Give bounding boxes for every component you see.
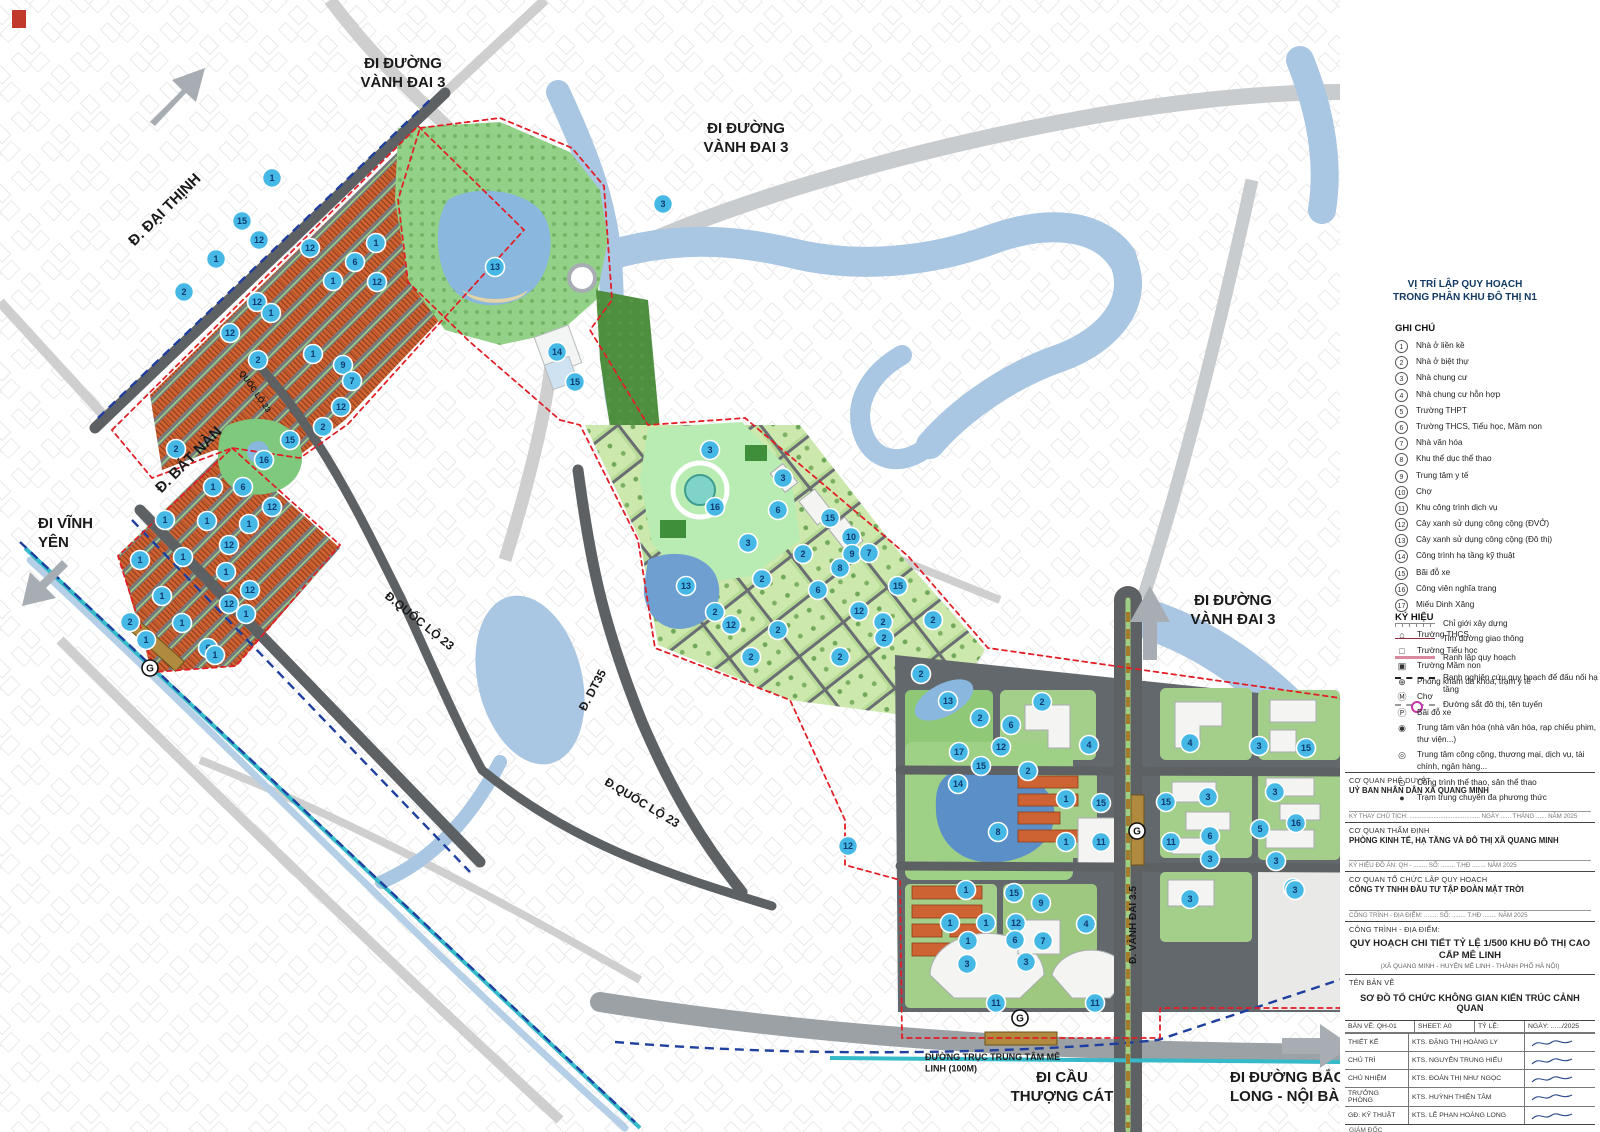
svg-text:12: 12 <box>996 742 1006 752</box>
staff-role: CHỦ TRÌ <box>1345 1051 1409 1069</box>
land-use-marker: 6 <box>769 501 788 520</box>
land-use-marker: 12 <box>992 738 1011 757</box>
metro-station-marker: G <box>1129 823 1145 839</box>
land-use-marker: 2 <box>249 351 268 370</box>
market-icon: Ⓜ <box>1395 691 1409 703</box>
legend-item-label: Cây xanh sử dụng công cộng (ĐVỞ) <box>1416 518 1549 530</box>
svg-text:1: 1 <box>269 173 274 183</box>
svg-text:2: 2 <box>800 549 805 559</box>
land-use-marker: 3 <box>774 469 793 488</box>
project-subtitle: (XÃ QUANG MINH - HUYỆN MÊ LINH - THÀNH P… <box>1349 963 1591 970</box>
land-use-marker: 1 <box>137 631 156 650</box>
inset-caption: VỊ TRÍ LẬP QUY HOẠCH TRONG PHÂN KHU ĐÔ T… <box>1350 278 1580 304</box>
svg-text:6: 6 <box>1008 720 1013 730</box>
land-use-marker: 16 <box>255 451 274 470</box>
land-use-marker: 12 <box>301 239 320 258</box>
svg-text:12: 12 <box>336 402 346 412</box>
legend-item-label: Nhà chung cư hỗn hợp <box>1416 389 1500 401</box>
svg-text:3: 3 <box>1205 792 1210 802</box>
svg-text:16: 16 <box>1291 818 1301 828</box>
legend-item-number: 1 <box>1395 340 1408 353</box>
land-use-marker: 11 <box>1162 833 1181 852</box>
land-use-marker: 1 <box>263 169 282 188</box>
svg-text:10: 10 <box>846 532 856 542</box>
land-use-marker: 1 <box>131 551 150 570</box>
legend-item-label: Khu công trình dịch vụ <box>1416 502 1497 514</box>
culture-center-icon: ◉ <box>1395 722 1409 734</box>
svg-text:1: 1 <box>310 349 315 359</box>
legend-item: 8 Khu thể dục thể thao <box>1395 453 1600 466</box>
svg-text:6: 6 <box>352 257 357 267</box>
land-use-marker: 1 <box>156 511 175 530</box>
legend-item-number: 17 <box>1395 599 1408 612</box>
approval-section: CƠ QUAN PHÊ DUYỆT UỶ BAN NHÂN DÂN XÃ QUA… <box>1345 773 1595 823</box>
svg-text:1: 1 <box>223 567 228 577</box>
land-use-marker: 11 <box>987 994 1006 1013</box>
staff-signature <box>1525 1051 1595 1069</box>
clinic-icon: ⊕ <box>1395 676 1409 688</box>
corner-logo <box>12 10 26 28</box>
land-use-marker: 15 <box>566 373 585 392</box>
legend-title: GHI CHÚ <box>1395 323 1600 334</box>
legend-item: 14 Công trình hạ tầng kỹ thuật <box>1395 550 1600 563</box>
approval-value: UỶ BAN NHÂN DÂN XÃ QUANG MINH <box>1349 786 1591 797</box>
legend-item: 6 Trường THCS, Tiểu học, Mầm non <box>1395 421 1600 434</box>
legend-item-label: Công viên nghĩa trang <box>1416 583 1497 595</box>
land-use-marker: 3 <box>739 534 758 553</box>
svg-text:1: 1 <box>947 918 952 928</box>
svg-text:15: 15 <box>237 216 247 226</box>
svg-text:1: 1 <box>180 552 185 562</box>
school-mamnon-icon: ▣ <box>1395 660 1409 672</box>
project-label: CÔNG TRÌNH - ĐỊA ĐIỂM: <box>1349 925 1591 934</box>
svg-text:17: 17 <box>954 747 964 757</box>
svg-text:12: 12 <box>372 277 382 287</box>
land-use-marker: 3 <box>1250 737 1269 756</box>
land-use-marker: 6 <box>234 478 253 497</box>
svg-text:1: 1 <box>210 482 215 492</box>
svg-text:1: 1 <box>330 276 335 286</box>
svg-text:11: 11 <box>1090 998 1100 1008</box>
inset-caption-line1: VỊ TRÍ LẬP QUY HOẠCH <box>1350 278 1580 291</box>
land-use-marker: 12 <box>332 398 351 417</box>
svg-text:13: 13 <box>943 696 953 706</box>
land-use-marker: 2 <box>742 648 761 667</box>
land-use-marker: 15 <box>1005 884 1024 903</box>
land-use-marker: 14 <box>548 343 567 362</box>
legend-item: 3 Nhà chung cư <box>1395 372 1600 385</box>
sheet-size: SHEET: A0 <box>1415 1021 1475 1032</box>
land-use-marker: 1 <box>977 914 996 933</box>
project-title: QUY HOẠCH CHI TIẾT TỶ LỆ 1/500 KHU ĐÔ TH… <box>1349 938 1591 963</box>
svg-text:1: 1 <box>179 618 184 628</box>
land-use-marker: 15 <box>233 212 252 231</box>
legend-item-number: 6 <box>1395 421 1408 434</box>
land-use-marker: 3 <box>1286 881 1305 900</box>
svg-text:9: 9 <box>849 549 854 559</box>
land-use-marker: 12 <box>839 837 858 856</box>
land-use-marker: 2 <box>912 665 931 684</box>
sheet-date: NGÀY: ....../2025 <box>1525 1021 1595 1032</box>
road-label: Đ. VÀNH ĐAI 3.5 <box>1126 886 1139 964</box>
land-use-marker: 2 <box>875 629 894 648</box>
inset-caption-line2: TRONG PHÂN KHU ĐÔ THỊ N1 <box>1350 291 1580 304</box>
svg-text:3: 3 <box>1023 957 1028 967</box>
legend-item-number: 7 <box>1395 437 1408 450</box>
land-use-marker: 7 <box>1034 932 1053 951</box>
legend-item-number: 2 <box>1395 356 1408 369</box>
svg-text:4: 4 <box>1086 740 1091 750</box>
land-use-marker: 12 <box>368 273 387 292</box>
legend-item-number: 13 <box>1395 534 1408 547</box>
approval-note: KÝ HIỆU ĐỒ ÁN: QH - ........ SỐ: .......… <box>1349 860 1591 869</box>
svg-text:7: 7 <box>1040 936 1045 946</box>
land-use-marker: 2 <box>1033 693 1052 712</box>
svg-text:3: 3 <box>1272 787 1277 797</box>
svg-text:1: 1 <box>983 918 988 928</box>
svg-text:15: 15 <box>893 581 903 591</box>
director-section: GIÁM ĐỐC NGUYỄN VĂN TÂN <box>1345 1125 1595 1132</box>
symbol-item: ◉ Trung tâm văn hóa (nhà văn hóa, rạp ch… <box>1395 722 1600 746</box>
legend-item-number: 10 <box>1395 486 1408 499</box>
svg-text:1: 1 <box>159 591 164 601</box>
legend-item-number: 4 <box>1395 389 1408 402</box>
land-use-marker: 9 <box>1032 894 1051 913</box>
legend-item-label: Bãi đỗ xe <box>1416 567 1450 579</box>
legend-item-label: Khu thể dục thể thao <box>1416 453 1492 465</box>
approval-note: CÔNG TRÌNH - ĐỊA ĐIỂM: ........ SỐ: ....… <box>1349 910 1591 919</box>
svg-text:1: 1 <box>137 555 142 565</box>
staff-name: KTS. LÊ PHAN HOÀNG LONG <box>1409 1106 1525 1124</box>
land-use-marker: 2 <box>769 621 788 640</box>
staff-signature <box>1525 1106 1595 1124</box>
land-use-marker: 12 <box>1007 914 1026 933</box>
project-section: CÔNG TRÌNH - ĐỊA ĐIỂM: QUY HOẠCH CHI TIẾ… <box>1345 922 1595 976</box>
svg-text:3: 3 <box>1273 856 1278 866</box>
land-use-marker: 1 <box>957 881 976 900</box>
svg-text:1: 1 <box>162 515 167 525</box>
land-use-marker: 2 <box>121 613 140 632</box>
symbol-item: ◎ Trung tâm công cộng, thương mại, dịch … <box>1395 749 1600 773</box>
svg-text:2: 2 <box>837 652 842 662</box>
svg-text:2: 2 <box>880 617 885 627</box>
sheet-scale: TỶ LỆ: <box>1475 1021 1525 1032</box>
public-center-icon: ◎ <box>1395 749 1409 761</box>
metro-station-marker: G <box>1012 1010 1028 1026</box>
svg-text:12: 12 <box>224 599 234 609</box>
land-use-marker: 4 <box>1181 734 1200 753</box>
svg-text:15: 15 <box>1161 797 1171 807</box>
svg-text:6: 6 <box>1012 935 1017 945</box>
land-use-marker: 15 <box>1157 793 1176 812</box>
land-use-marker: 8 <box>831 559 850 578</box>
svg-text:1: 1 <box>268 308 273 318</box>
symbol-item-label: Trường Tiểu học <box>1417 645 1478 657</box>
land-use-marker: 15 <box>889 577 908 596</box>
symbol-item-label: Bãi đỗ xe <box>1417 707 1451 719</box>
staff-table: THIẾT KẾKTS. ĐẶNG THỊ HOÀNG LYCHỦ TRÌKTS… <box>1345 1033 1595 1125</box>
legend-item-label: Nhà ở liền kề <box>1416 340 1465 352</box>
svg-text:13: 13 <box>681 581 691 591</box>
svg-text:8: 8 <box>995 827 1000 837</box>
svg-text:12: 12 <box>843 841 853 851</box>
land-use-marker: 2 <box>831 648 850 667</box>
svg-text:2: 2 <box>173 444 178 454</box>
legend-item-number: 11 <box>1395 502 1408 515</box>
svg-text:1: 1 <box>243 609 248 619</box>
svg-text:2: 2 <box>759 574 764 584</box>
land-use-marker: 13 <box>939 692 958 711</box>
svg-text:3: 3 <box>964 959 969 969</box>
legend-item-number: 14 <box>1395 550 1408 563</box>
land-use-marker: 17 <box>950 743 969 762</box>
svg-text:12: 12 <box>254 235 264 245</box>
svg-text:15: 15 <box>1096 798 1106 808</box>
svg-text:12: 12 <box>224 540 234 550</box>
land-use-marker: 1 <box>1057 833 1076 852</box>
staff-role: CHỦ NHIỆM <box>1345 1069 1409 1087</box>
legend-item-label: Chợ <box>1416 486 1432 498</box>
land-use-marker: 3 <box>654 195 673 214</box>
symbol-item-label: Trung tâm công cộng, thương mại, dịch vụ… <box>1417 749 1600 773</box>
land-use-marker: 11 <box>1086 994 1105 1013</box>
svg-text:G: G <box>146 664 154 675</box>
land-use-marker: 6 <box>1006 931 1025 950</box>
land-use-marker: 10 <box>842 528 861 547</box>
land-use-marker: 1 <box>174 548 193 567</box>
svg-text:1: 1 <box>965 936 970 946</box>
legend-items: 1 Nhà ở liền kề2 Nhà ở biệt thự3 Nhà chu… <box>1395 340 1600 612</box>
drawing-title: SƠ ĐỒ TỔ CHỨC KHÔNG GIAN KIẾN TRÚC CẢNH … <box>1349 993 1591 1013</box>
land-use-marker: 6 <box>809 581 828 600</box>
land-use-marker: 1 <box>304 345 323 364</box>
legend-item-number: 15 <box>1395 567 1408 580</box>
svg-text:2: 2 <box>127 617 132 627</box>
legend-item: 15 Bãi đỗ xe <box>1395 567 1600 580</box>
svg-text:1: 1 <box>204 516 209 526</box>
land-use-marker: 12 <box>850 602 869 621</box>
land-use-marker: 2 <box>706 603 725 622</box>
approval-sections: CƠ QUAN PHÊ DUYỆT UỶ BAN NHÂN DÂN XÃ QUA… <box>1345 773 1595 922</box>
svg-text:15: 15 <box>285 435 295 445</box>
land-use-marker: 1 <box>367 234 386 253</box>
svg-text:2: 2 <box>775 625 780 635</box>
legend-item: 16 Công viên nghĩa trang <box>1395 583 1600 596</box>
land-use-marker: 1 <box>153 587 172 606</box>
land-use-marker: 2 <box>314 418 333 437</box>
symbol-item: □ Trường Tiểu học <box>1395 645 1600 657</box>
approval-section: CƠ QUAN THẨM ĐỊNH PHÒNG KINH TẾ, HẠ TẦNG… <box>1345 823 1595 873</box>
svg-text:12: 12 <box>305 243 315 253</box>
legend-item-label: Nhà ở biệt thự <box>1416 356 1469 368</box>
svg-text:1: 1 <box>212 650 217 660</box>
land-use-marker: 1 <box>207 250 226 269</box>
svg-text:3: 3 <box>745 538 750 548</box>
school-thcs-icon: ⌂ <box>1395 629 1409 641</box>
land-use-marker: 12 <box>220 536 239 555</box>
land-use-marker: 12 <box>220 595 239 614</box>
legend-item: 10 Chợ <box>1395 486 1600 499</box>
drawing-label: TÊN BẢN VẼ <box>1349 978 1591 987</box>
land-use-marker: 14 <box>949 775 968 794</box>
land-use-marker: 1 <box>217 563 236 582</box>
land-use-marker: 13 <box>677 577 696 596</box>
drawing-section: TÊN BẢN VẼ SƠ ĐỒ TỔ CHỨC KHÔNG GIAN KIẾN… <box>1345 975 1595 1021</box>
land-use-marker: 1 <box>324 272 343 291</box>
approval-label: CƠ QUAN THẨM ĐỊNH <box>1349 826 1591 835</box>
svg-text:3: 3 <box>1207 854 1212 864</box>
land-use-marker: 1 <box>173 614 192 633</box>
north-park-lake <box>438 191 551 305</box>
legend-item-label: Trường THCS, Tiểu học, Mầm non <box>1416 421 1542 433</box>
svg-text:2: 2 <box>320 422 325 432</box>
legend-item-label: Trung tâm y tế <box>1416 470 1468 482</box>
legend-item: 4 Nhà chung cư hỗn hợp <box>1395 389 1600 402</box>
legend-item-number: 9 <box>1395 470 1408 483</box>
svg-text:11: 11 <box>1166 837 1176 847</box>
symbol-item-label: Trung tâm văn hóa (nhà văn hóa, rạp chiế… <box>1417 722 1600 746</box>
svg-text:15: 15 <box>1009 888 1019 898</box>
legend-item: 11 Khu công trình dịch vụ <box>1395 502 1600 515</box>
metro-station-marker: G <box>142 660 158 676</box>
svg-text:1: 1 <box>246 519 251 529</box>
approval-label: CƠ QUAN TỔ CHỨC LẬP QUY HOẠCH <box>1349 875 1591 884</box>
staff-role: TRƯỞNG PHÒNG <box>1345 1087 1409 1106</box>
staff-name: KTS. NGUYỄN TRUNG HIẾU <box>1409 1051 1525 1069</box>
svg-text:14: 14 <box>953 779 963 789</box>
land-use-marker: 1 <box>198 512 217 531</box>
land-use-marker: 2 <box>794 545 813 564</box>
staff-name: KTS. ĐOÀN THỊ NHƯ NGỌC <box>1409 1069 1525 1087</box>
land-use-marker: 8 <box>989 823 1008 842</box>
land-use-marker: 15 <box>1092 794 1111 813</box>
land-use-marker: 7 <box>343 372 362 391</box>
svg-text:5: 5 <box>1257 824 1262 834</box>
svg-text:1: 1 <box>1063 794 1068 804</box>
land-use-marker: 6 <box>1201 827 1220 846</box>
land-use-marker: 11 <box>1092 833 1111 852</box>
symbol-item: Ⓟ Bãi đỗ xe <box>1395 707 1600 719</box>
land-use-marker: 12 <box>250 231 269 250</box>
svg-text:1: 1 <box>373 238 378 248</box>
legend-item-label: Cây xanh sử dụng công cộng (Đô thị) <box>1416 534 1552 546</box>
land-use-marker: 15 <box>821 509 840 528</box>
land-use-marker: 3 <box>1181 890 1200 909</box>
land-use-marker: 15 <box>1297 739 1316 758</box>
svg-text:6: 6 <box>1207 831 1212 841</box>
legend-item-label: Công trình hạ tầng kỹ thuật <box>1416 550 1515 562</box>
legend-item-label: Nhà chung cư <box>1416 372 1467 384</box>
svg-text:2: 2 <box>881 633 886 643</box>
svg-text:4: 4 <box>1187 738 1192 748</box>
legend-item: 12 Cây xanh sử dụng công cộng (ĐVỞ) <box>1395 518 1600 531</box>
legend-item-number: 8 <box>1395 453 1408 466</box>
land-use-marker: 3 <box>958 955 977 974</box>
symbol-item-label: Trường Mầm non <box>1417 660 1481 672</box>
sheet-info-row: BẢN VẼ: QH-01 SHEET: A0 TỶ LỆ: NGÀY: ...… <box>1345 1021 1595 1033</box>
legend-item: 13 Cây xanh sử dụng công cộng (Đô thị) <box>1395 534 1600 547</box>
svg-text:12: 12 <box>854 606 864 616</box>
staff-signature <box>1525 1069 1595 1087</box>
legend-item: 17 Miếu Dinh Xăng <box>1395 599 1600 612</box>
approval-label: CƠ QUAN PHÊ DUYỆT <box>1349 776 1591 785</box>
legend-item-label: Nhà văn hóa <box>1416 437 1462 449</box>
svg-text:G: G <box>1133 827 1141 838</box>
sheet-number: BẢN VẼ: QH-01 <box>1345 1021 1415 1032</box>
land-use-marker: 3 <box>1267 852 1286 871</box>
director-label: GIÁM ĐỐC <box>1349 1127 1591 1132</box>
symbol-item-label: Chợ <box>1417 691 1433 703</box>
svg-text:9: 9 <box>1038 898 1043 908</box>
svg-text:7: 7 <box>349 376 354 386</box>
land-use-marker: 3 <box>1266 783 1285 802</box>
svg-text:12: 12 <box>267 502 277 512</box>
svg-text:3: 3 <box>780 473 785 483</box>
land-use-marker: 2 <box>924 611 943 630</box>
land-use-marker: 12 <box>241 581 260 600</box>
land-use-marker: 1 <box>237 605 256 624</box>
svg-text:1: 1 <box>213 254 218 264</box>
svg-text:2: 2 <box>748 652 753 662</box>
land-use-marker: 12 <box>263 498 282 517</box>
land-use-marker: 1 <box>204 478 223 497</box>
symbol-item-label: Phòng khám đa khoa, trạm y tế <box>1417 676 1531 688</box>
svg-text:3: 3 <box>1256 741 1261 751</box>
svg-text:11: 11 <box>991 998 1001 1008</box>
land-use-marker: 12 <box>221 324 240 343</box>
staff-role: GĐ. KỸ THUẬT <box>1345 1106 1409 1124</box>
svg-text:2: 2 <box>181 287 186 297</box>
land-use-marker: 3 <box>1017 953 1036 972</box>
land-use-marker: 1 <box>262 304 281 323</box>
approval-section: CƠ QUAN TỔ CHỨC LẬP QUY HOẠCH CÔNG TY TN… <box>1345 872 1595 922</box>
land-use-marker: 1 <box>240 515 259 534</box>
land-use-marker: 4 <box>1080 736 1099 755</box>
approval-note: KÝ THAY CHỦ TỊCH: ......................… <box>1349 811 1591 820</box>
roundabout <box>569 265 595 291</box>
svg-text:16: 16 <box>259 455 269 465</box>
svg-text:G: G <box>1016 1014 1024 1025</box>
symbols-title: KÝ HIỆU <box>1395 612 1600 623</box>
svg-text:3: 3 <box>660 199 665 209</box>
svg-text:15: 15 <box>825 513 835 523</box>
svg-text:2: 2 <box>712 607 717 617</box>
symbol-item: Ⓜ Chợ <box>1395 691 1600 703</box>
svg-text:3: 3 <box>1292 885 1297 895</box>
svg-text:1: 1 <box>143 635 148 645</box>
land-use-marker: 1 <box>206 646 225 665</box>
svg-text:13: 13 <box>490 262 500 272</box>
legend-item: 5 Trường THPT <box>1395 405 1600 418</box>
approval-value: PHÒNG KINH TẾ, HẠ TẦNG VÀ ĐÔ THỊ XÃ QUAN… <box>1349 836 1591 847</box>
legend-item-label: Miếu Dinh Xăng <box>1416 599 1474 611</box>
svg-text:15: 15 <box>570 377 580 387</box>
svg-text:2: 2 <box>1025 766 1030 776</box>
svg-text:7: 7 <box>866 548 871 558</box>
parking-icon: Ⓟ <box>1395 707 1409 719</box>
land-use-marker: 3 <box>1201 850 1220 869</box>
staff-signature <box>1525 1087 1595 1106</box>
svg-text:12: 12 <box>252 297 262 307</box>
school-tieuhoc-icon: □ <box>1395 645 1409 657</box>
land-use-marker: 4 <box>1077 915 1096 934</box>
svg-text:3: 3 <box>707 445 712 455</box>
legend-item-number: 16 <box>1395 583 1408 596</box>
staff-name: KTS. HUỲNH THIỆN TÂM <box>1409 1087 1525 1106</box>
land-use-marker: 6 <box>346 253 365 272</box>
legend-item: 7 Nhà văn hóa <box>1395 437 1600 450</box>
symbol-item-label: Trường THCS <box>1417 629 1469 641</box>
